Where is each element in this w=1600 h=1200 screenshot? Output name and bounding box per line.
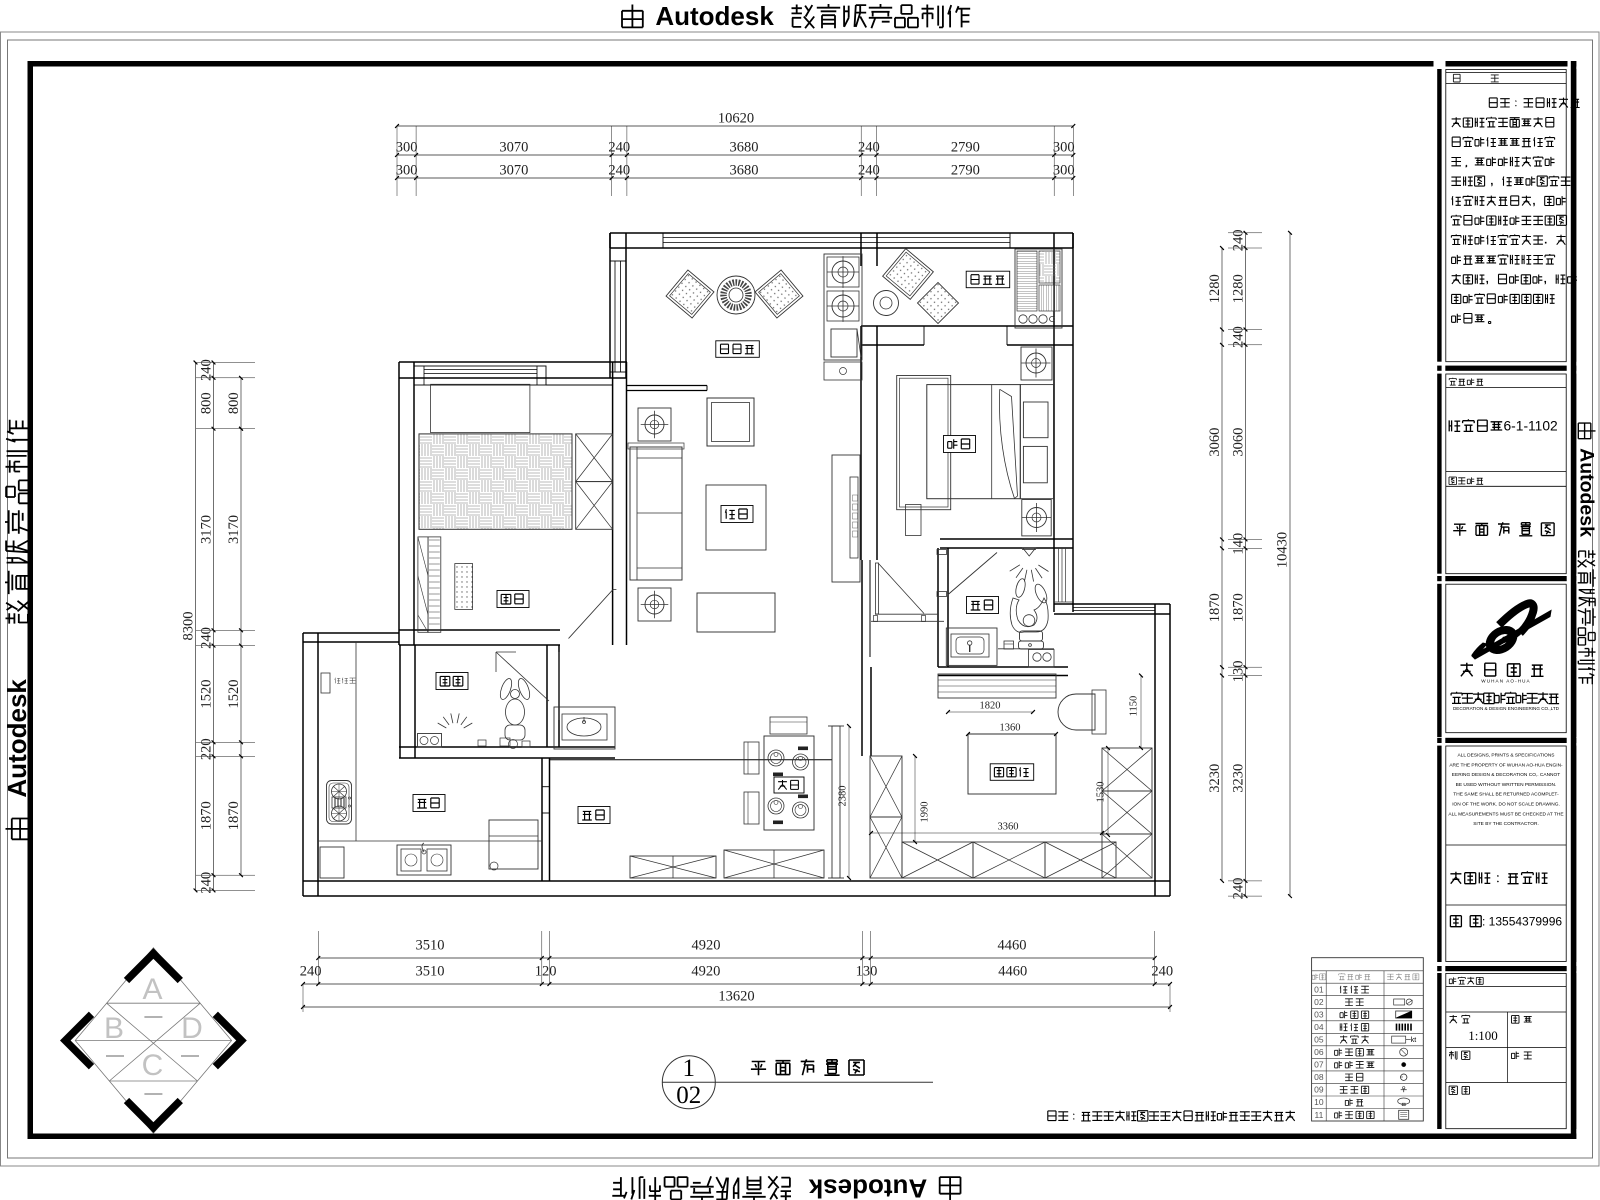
svg-text:3070: 3070 xyxy=(499,140,528,156)
svg-text:kt: kt xyxy=(1411,1037,1417,1044)
svg-text:130: 130 xyxy=(1231,661,1247,683)
svg-text:1990: 1990 xyxy=(919,802,930,823)
svg-text:2790: 2790 xyxy=(951,163,980,179)
svg-text:Autodesk: Autodesk xyxy=(655,1,774,31)
svg-text:1530: 1530 xyxy=(1095,782,1106,803)
svg-text:3230: 3230 xyxy=(1231,764,1247,793)
svg-text:3070: 3070 xyxy=(499,163,528,179)
svg-text:1520: 1520 xyxy=(199,680,215,709)
svg-text:.: . xyxy=(1544,235,1547,247)
svg-text:ION OF THE WORK. DO NOT SCALE: ION OF THE WORK. DO NOT SCALE DRAWING. xyxy=(1452,802,1560,808)
svg-text:1820: 1820 xyxy=(980,700,1001,711)
svg-text:8300: 8300 xyxy=(181,612,197,641)
svg-text:THE SAME SHALL BE RETURNED ACO: THE SAME SHALL BE RETURNED ACOMPLET- xyxy=(1453,792,1559,798)
svg-text:13620: 13620 xyxy=(718,989,754,1005)
svg-text:ALL MEASUREMENTS MUST BE CHECK: ALL MEASUREMENTS MUST BE CHECKED AT THE xyxy=(1448,811,1563,817)
svg-text:09: 09 xyxy=(1314,1085,1324,1095)
svg-text:1150: 1150 xyxy=(1128,696,1139,717)
svg-text:1870: 1870 xyxy=(1231,593,1247,622)
svg-text:240: 240 xyxy=(1151,964,1173,980)
svg-text:3230: 3230 xyxy=(1207,764,1223,793)
svg-text:03: 03 xyxy=(1314,1010,1324,1020)
svg-text:4920: 4920 xyxy=(692,938,721,954)
svg-text:04: 04 xyxy=(1314,1022,1324,1032)
svg-text:WUHAN AO-HUA: WUHAN AO-HUA xyxy=(1481,679,1530,684)
svg-text:120: 120 xyxy=(535,964,557,980)
svg-text:3170: 3170 xyxy=(226,515,242,544)
svg-text:300: 300 xyxy=(1053,163,1075,179)
svg-text:240: 240 xyxy=(1231,326,1247,348)
svg-text:ALL DESIGNS, PRINTS & SPECIFIC: ALL DESIGNS, PRINTS & SPECIFICATIONS xyxy=(1457,753,1554,759)
svg-text:3510: 3510 xyxy=(416,964,445,980)
svg-text:240: 240 xyxy=(199,872,215,894)
svg-text:3360: 3360 xyxy=(998,821,1019,832)
svg-text:11: 11 xyxy=(1314,1110,1323,1120)
svg-text:A: A xyxy=(142,973,162,1006)
svg-text:Autodesk: Autodesk xyxy=(808,1174,927,1200)
svg-text:Autodesk: Autodesk xyxy=(1575,448,1597,537)
svg-text:300: 300 xyxy=(396,163,418,179)
svg-text:07: 07 xyxy=(1314,1060,1324,1070)
svg-text:4460: 4460 xyxy=(998,938,1027,954)
svg-text:DECORATION & DESIGN ENGINEERIN: DECORATION & DESIGN ENGINEERING CO.,LTD xyxy=(1453,706,1560,711)
svg-text:,: , xyxy=(1490,176,1493,188)
svg-text:800: 800 xyxy=(226,392,242,414)
svg-text:,: , xyxy=(1544,274,1547,286)
svg-text:02: 02 xyxy=(676,1082,701,1109)
svg-text:D: D xyxy=(181,1012,203,1045)
svg-text:C: C xyxy=(142,1049,164,1082)
svg-text:1870: 1870 xyxy=(1207,593,1223,622)
svg-text:240: 240 xyxy=(199,627,215,649)
svg-text:240: 240 xyxy=(199,359,215,381)
svg-text:05: 05 xyxy=(1314,1035,1324,1045)
svg-text:240: 240 xyxy=(1231,878,1247,900)
svg-text:,: , xyxy=(1486,274,1489,286)
svg-text:140: 140 xyxy=(1231,533,1247,555)
svg-text:1:100: 1:100 xyxy=(1468,1028,1498,1043)
svg-text:10: 10 xyxy=(1314,1097,1324,1107)
svg-text:Autodesk: Autodesk xyxy=(2,679,32,798)
svg-text:220: 220 xyxy=(199,738,215,760)
svg-text:240: 240 xyxy=(1231,230,1247,252)
svg-text:240: 240 xyxy=(300,964,322,980)
svg-text:1: 1 xyxy=(683,1055,696,1082)
svg-text:10620: 10620 xyxy=(718,111,754,127)
svg-text:01: 01 xyxy=(1314,985,1324,995)
svg-text:BE USED WITHOUT WRITTEN PERMIS: BE USED WITHOUT WRITTEN PERMISSION. xyxy=(1456,782,1557,788)
svg-text:4920: 4920 xyxy=(691,964,720,980)
svg-text:3680: 3680 xyxy=(730,163,759,179)
svg-text:1870: 1870 xyxy=(199,801,215,830)
svg-text:,: , xyxy=(1532,195,1535,207)
svg-text:300: 300 xyxy=(396,140,418,156)
svg-text:B: B xyxy=(104,1012,124,1045)
svg-text:1520: 1520 xyxy=(226,680,242,709)
svg-text:3170: 3170 xyxy=(199,515,215,544)
svg-text:1360: 1360 xyxy=(1000,722,1021,733)
svg-text:800: 800 xyxy=(199,392,215,414)
svg-text:2790: 2790 xyxy=(951,140,980,156)
svg-text:130: 130 xyxy=(856,964,878,980)
svg-text:2380: 2380 xyxy=(837,786,848,807)
svg-text:02: 02 xyxy=(1314,997,1324,1007)
svg-text:SITE BY THE CONTRACTOR.: SITE BY THE CONTRACTOR. xyxy=(1473,821,1539,827)
svg-text:300: 300 xyxy=(1053,140,1075,156)
svg-text:10430: 10430 xyxy=(1275,532,1291,568)
svg-text:4460: 4460 xyxy=(998,964,1027,980)
svg-text:08: 08 xyxy=(1314,1072,1324,1082)
svg-text:3060: 3060 xyxy=(1231,428,1247,457)
svg-text:6-1-1102: 6-1-1102 xyxy=(1504,418,1558,433)
svg-text:1870: 1870 xyxy=(226,801,242,830)
svg-text:1280: 1280 xyxy=(1207,274,1223,303)
svg-text:3510: 3510 xyxy=(416,938,445,954)
svg-text:EERING DESIGN & DECORATION CO,: EERING DESIGN & DECORATION CO,. CANNOT xyxy=(1452,772,1560,778)
svg-text:1280: 1280 xyxy=(1231,274,1247,303)
svg-text:ARE THE PROPERTY OF WUHAN AO-H: ARE THE PROPERTY OF WUHAN AO-HUA ENGIN- xyxy=(1449,762,1563,768)
svg-text:06: 06 xyxy=(1314,1047,1324,1057)
svg-text:3060: 3060 xyxy=(1207,428,1223,457)
svg-text:3680: 3680 xyxy=(730,140,759,156)
svg-text:: 13554379996: : 13554379996 xyxy=(1482,915,1562,929)
